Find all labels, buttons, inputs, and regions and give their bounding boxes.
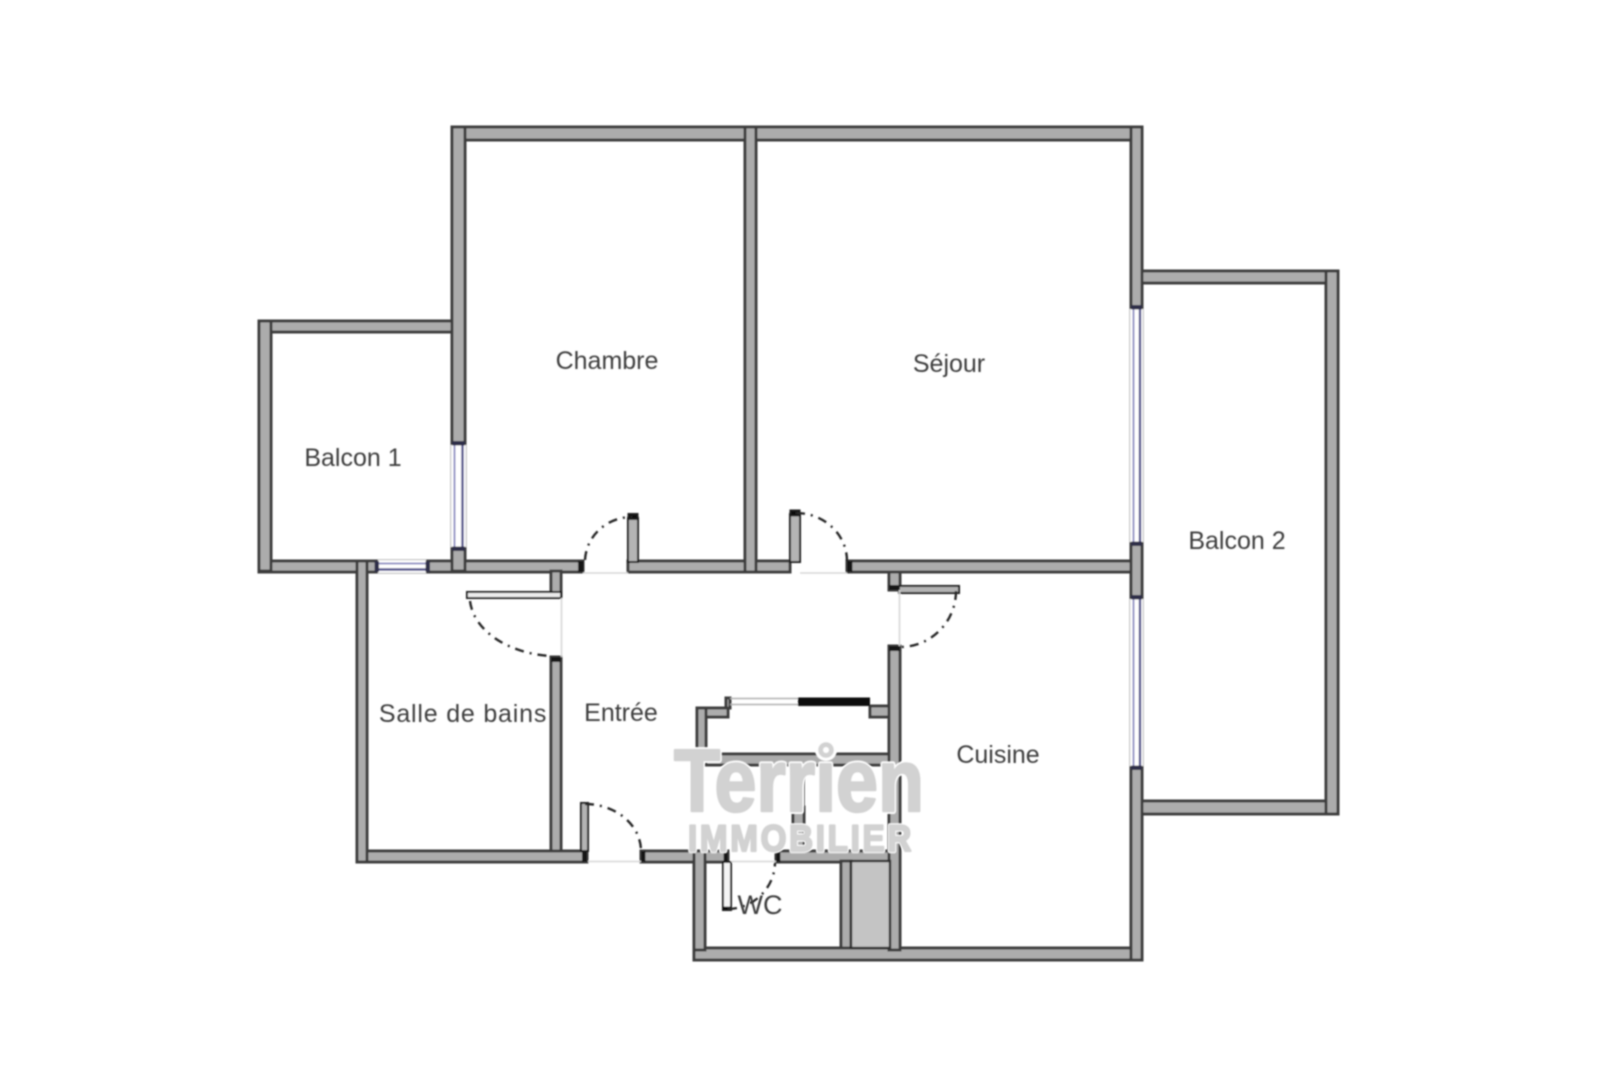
- svg-text:Salle de bains: Salle de bains: [379, 700, 547, 728]
- svg-text:Terrıen: Terrıen: [674, 731, 924, 830]
- svg-text:IMMOBILIER: IMMOBILIER: [688, 818, 914, 859]
- svg-text:Cuisine: Cuisine: [956, 741, 1039, 769]
- svg-text:Séjour: Séjour: [913, 350, 985, 378]
- svg-text:Balcon 1: Balcon 1: [304, 444, 401, 472]
- svg-text:Balcon 2: Balcon 2: [1188, 527, 1285, 555]
- svg-text:Entrée: Entrée: [584, 699, 658, 727]
- svg-text:Chambre: Chambre: [556, 347, 659, 375]
- svg-text:WC: WC: [738, 890, 783, 920]
